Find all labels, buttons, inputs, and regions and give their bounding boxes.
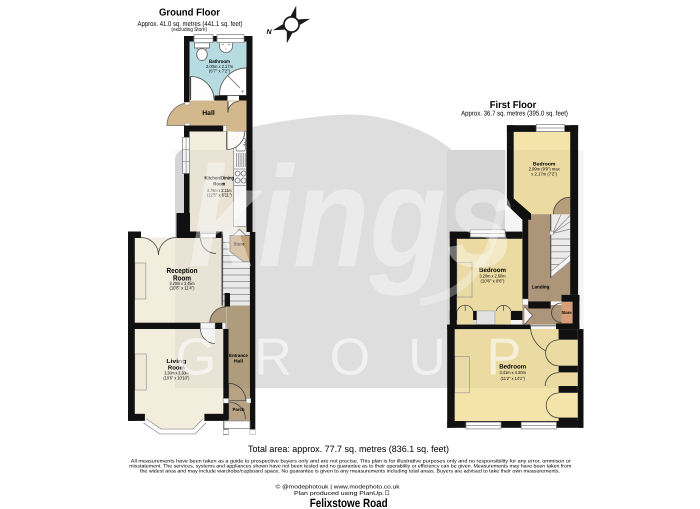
svg-text:R: R <box>254 329 292 387</box>
svg-text:O: O <box>330 329 370 387</box>
svg-text:Hall: Hall <box>202 110 215 117</box>
svg-text:Felixstowe Road: Felixstowe Road <box>310 496 388 509</box>
svg-text:© @modephotouk | www.modephoto: © @modephotouk | www.modephoto.co.uk <box>276 483 400 490</box>
svg-text:Porch: Porch <box>233 407 245 412</box>
svg-text:Total area: approx. 77.7 sq. m: Total area: approx. 77.7 sq. metres (836… <box>248 444 449 454</box>
svg-text:P: P <box>487 329 522 387</box>
svg-text:(6'7" x 7'2"): (6'7" x 7'2") <box>209 68 230 73</box>
svg-text:the widest area and may includ: the widest area and may include wardrobe… <box>140 469 560 475</box>
svg-text:kings: kings <box>189 138 516 297</box>
svg-text:First Floor: First Floor <box>490 100 537 111</box>
svg-text:U: U <box>408 329 446 387</box>
svg-text:Approx. 36.7 sq. metres (395.0: Approx. 36.7 sq. metres (395.0 sq. feet) <box>461 110 568 118</box>
svg-text:G: G <box>176 329 216 387</box>
svg-text:(excluding Store): (excluding Store) <box>171 27 207 33</box>
svg-text:Ground Floor: Ground Floor <box>159 8 220 19</box>
svg-text:All measurements have been tak: All measurements have been taken as a gu… <box>131 458 571 464</box>
svg-text:misstatement. The services, sy: misstatement. The services, systems and … <box>129 464 571 470</box>
